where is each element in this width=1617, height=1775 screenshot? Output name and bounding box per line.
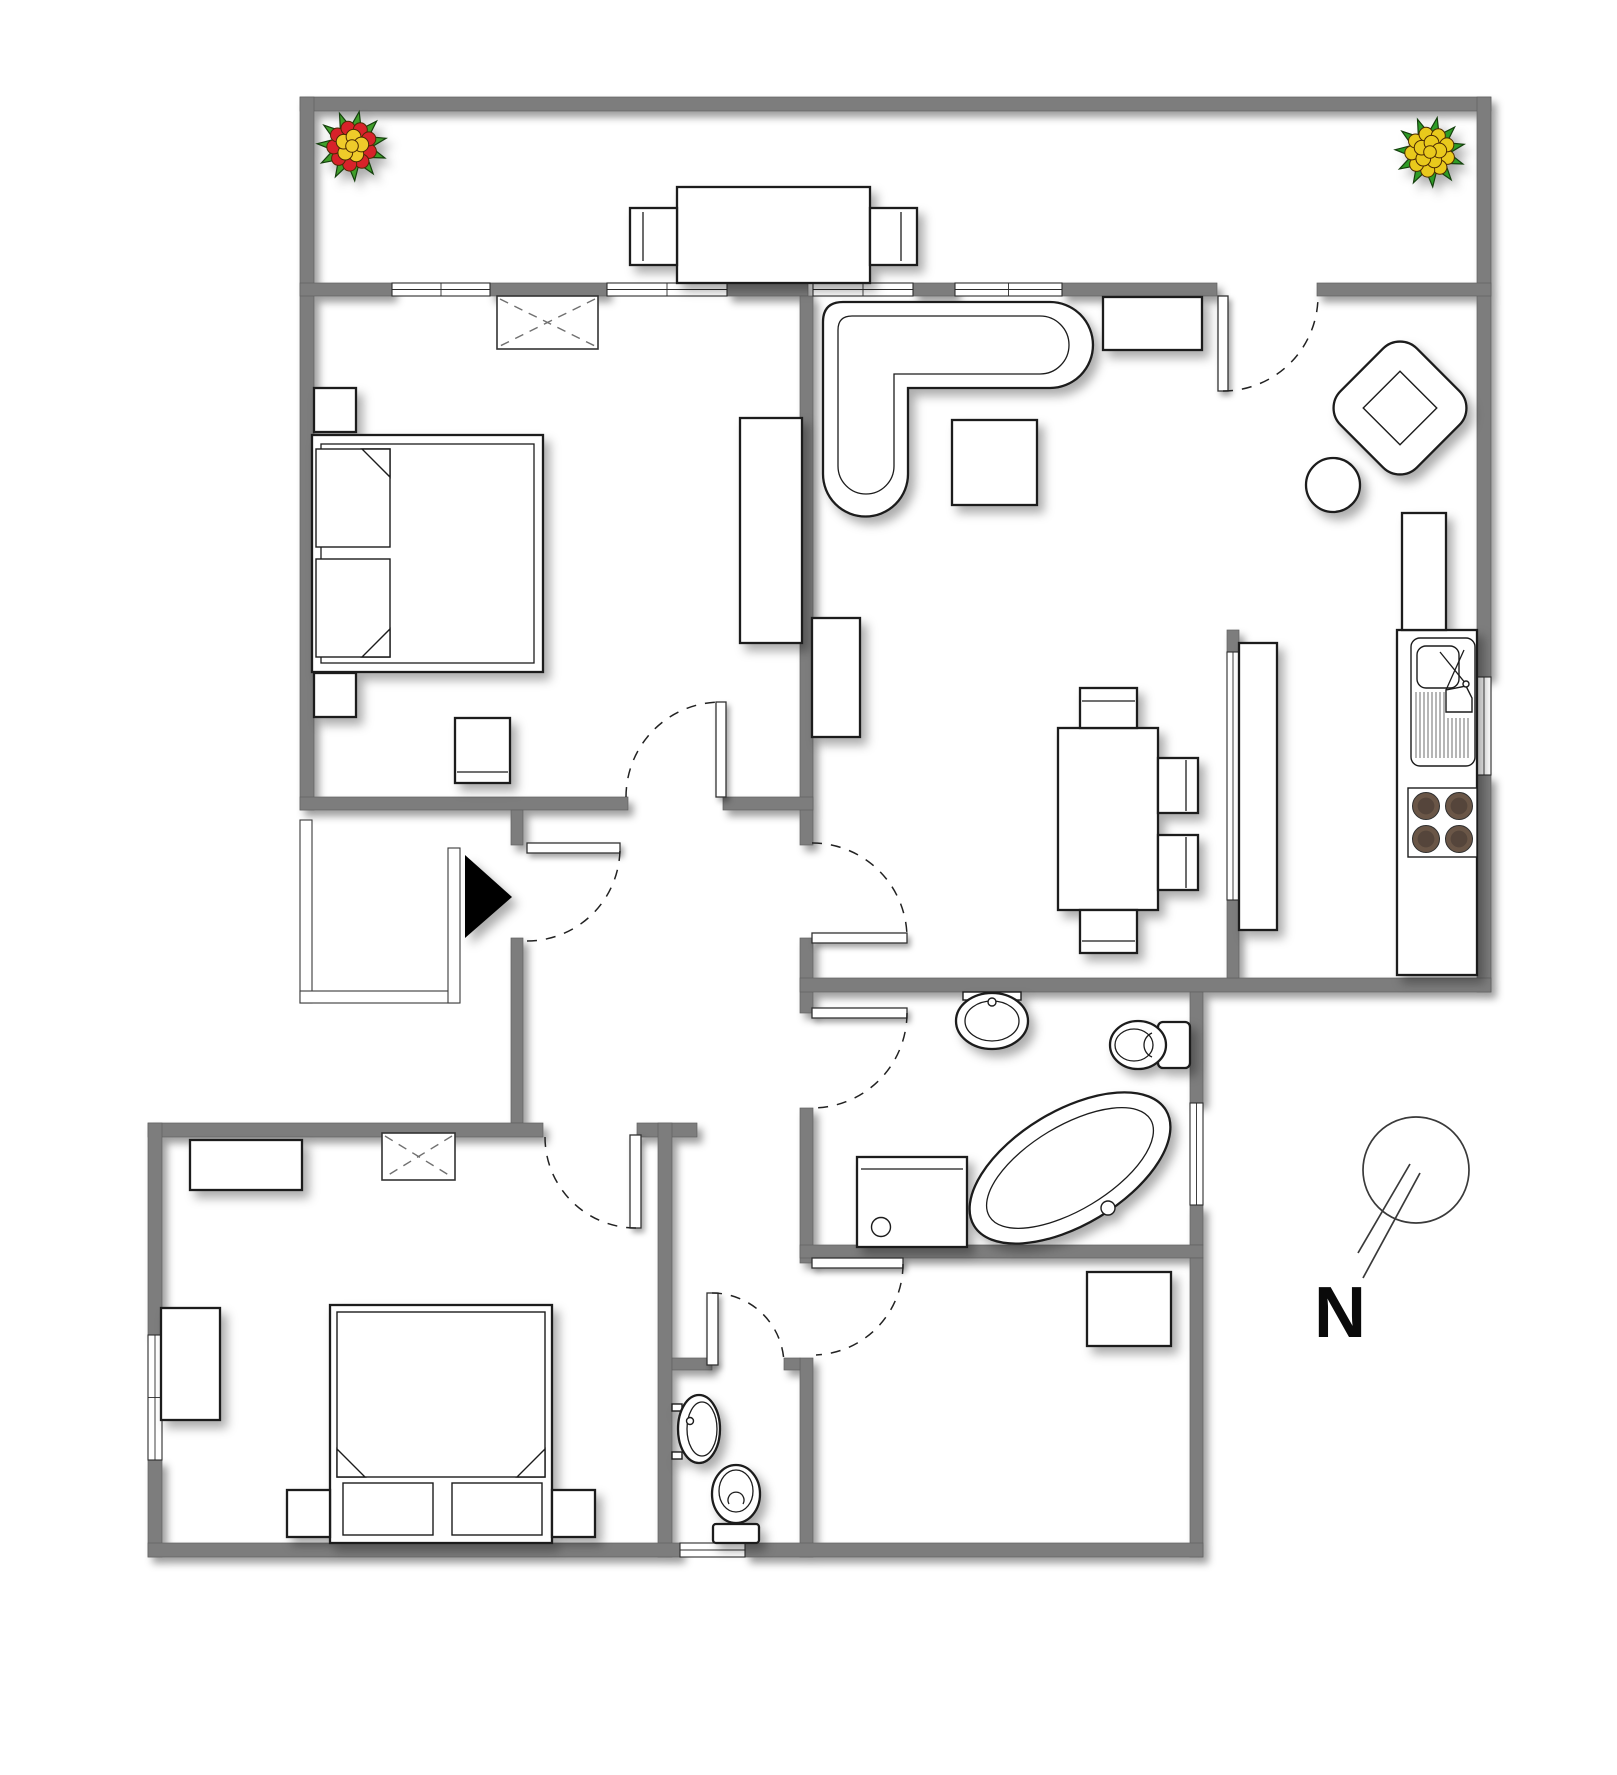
floor-plan-page: N (0, 0, 1617, 1775)
wall-balcony-b (490, 283, 607, 296)
wall-bath-right-a (1190, 992, 1203, 1103)
balcony-chair-right (870, 208, 917, 265)
wall-bedroom2-top (148, 1123, 543, 1137)
compass-north-label: N (1314, 1273, 1366, 1353)
window-balcony-3 (813, 283, 913, 296)
door-bedroom2-leaf (630, 1135, 641, 1228)
window-kitchen-right (1477, 677, 1491, 775)
flower-yellow-berry-center (1424, 146, 1437, 159)
door-bedroom2-swing (545, 1137, 636, 1228)
wall-balcony-e (1062, 283, 1217, 296)
bathtub (945, 1061, 1196, 1274)
entrance-arrow (465, 855, 512, 938)
door-entrance-swing (527, 848, 620, 941)
bed1-nightstand-bottom (314, 673, 356, 717)
dining-chair-right1 (1158, 758, 1198, 813)
wall-wc-inner-b (784, 1358, 800, 1370)
wall-balcony-d (913, 283, 955, 296)
balcony-table (677, 187, 870, 283)
window-balcony-2 (607, 283, 727, 296)
bed2-duvet (337, 1312, 545, 1477)
door-room2-leaf (812, 1258, 903, 1268)
floor-plan-svg: N (0, 0, 1617, 1775)
bed2-nightstand-left (287, 1490, 330, 1537)
dining-chair-top (1080, 688, 1137, 728)
bath-toilet-bowl (1110, 1021, 1166, 1069)
dining-chair-right2 (1158, 835, 1198, 890)
coffee-table (952, 420, 1037, 505)
wall-bath-right-b (1190, 1205, 1203, 1245)
wall-bedroom2-right (658, 1123, 672, 1557)
stove-burner-2-inner (1451, 798, 1468, 815)
door-bedroom1-leaf (716, 702, 726, 797)
door-wc-leaf (707, 1293, 718, 1365)
wc-sink-faucet (687, 1418, 694, 1425)
bed2-pillow-left (343, 1483, 433, 1535)
flower-red (317, 112, 386, 181)
window-bathroom (1190, 1103, 1203, 1205)
bathtub-drain (1101, 1201, 1115, 1215)
wall-room2-right (1190, 1258, 1203, 1557)
wall-bedroom1-bottom-left (300, 797, 628, 810)
flower-red-berry-center (346, 140, 359, 153)
door-balcony-leaf (1218, 296, 1228, 391)
wall-bottom-b (745, 1543, 1203, 1557)
wc-sink (678, 1395, 720, 1463)
door-hall-dining-leaf (812, 933, 907, 943)
shower-drain (872, 1218, 891, 1237)
wall-bedroom2-left-b (148, 1460, 162, 1557)
stove-burner-1-inner (1418, 798, 1435, 815)
window-balcony-4 (955, 283, 1062, 296)
wall-divider-low (800, 1108, 813, 1263)
room2-table (1087, 1272, 1171, 1346)
furniture-layer (161, 187, 1477, 1543)
wall-balcony-f (1317, 283, 1491, 296)
wall-kitchen-divider-cap-bottom (1227, 900, 1239, 978)
wall-kitchen-divider-cap-top (1227, 630, 1239, 652)
bed2-nightstand-right (552, 1490, 595, 1537)
wall-hall (511, 938, 523, 1123)
door-bathroom-swing (812, 1013, 907, 1108)
kitchen-sink-basin2 (1446, 686, 1472, 712)
bedroom2-dresser (190, 1140, 302, 1190)
door-room2-swing (816, 1264, 903, 1355)
wall-hall-stub (511, 810, 523, 845)
stove-burner-4-inner (1451, 831, 1468, 848)
bed1-nightstand-top (314, 388, 356, 432)
bedroom2-desk (161, 1308, 220, 1420)
bath-sink-faucet (988, 998, 996, 1006)
wall-bottom-a (148, 1543, 680, 1557)
wall-balcony-c (727, 283, 808, 296)
compass: N (1314, 1117, 1469, 1353)
window-balcony-1 (392, 283, 490, 296)
kitchen-tall-cabinet (1402, 513, 1446, 630)
balcony-chair-left (630, 208, 677, 265)
wc-sink-tab2 (672, 1452, 682, 1459)
door-bathroom-leaf (812, 1008, 907, 1018)
wc-toilet-tank (713, 1524, 759, 1543)
wall-bedroom1-bottom-right (723, 797, 813, 810)
wall-divider-mid (800, 938, 813, 1013)
door-wc-swing (712, 1293, 784, 1365)
dining-chair-bottom (1080, 910, 1137, 953)
wall-right-mid (1477, 775, 1491, 992)
stairwell-wall-left (300, 820, 312, 1003)
window-wc (680, 1543, 745, 1557)
compass-circle (1363, 1117, 1469, 1223)
door-balcony-swing (1223, 296, 1318, 391)
wall-right-upper (1477, 97, 1491, 677)
window-kitchen-divider (1227, 652, 1239, 900)
kitchen-island-counter (1239, 643, 1277, 930)
door-bedroom1-swing (626, 702, 721, 797)
sideboard (1103, 297, 1202, 350)
dining-table (1058, 728, 1158, 910)
wall-balcony-a (300, 283, 392, 296)
thin-walls-layer (300, 820, 460, 1003)
stove-burner-3-inner (1418, 831, 1435, 848)
kitchen-faucet-dot (1463, 681, 1469, 687)
bedroom1-cabinet (740, 418, 802, 643)
door-entrance-leaf (527, 843, 620, 853)
dining-cabinet (812, 618, 860, 737)
side-table-round (1306, 458, 1360, 512)
wall-wc-inner-a (672, 1358, 712, 1370)
wall-bedroom2-left-a (148, 1123, 162, 1335)
wall-bath-kitchen (800, 978, 1491, 992)
bed2-pillow-right (452, 1483, 542, 1535)
flower-yellow (1395, 118, 1464, 187)
compass-needle-2 (1363, 1173, 1420, 1278)
wall-wc-right-low (800, 1358, 813, 1557)
door-hall-dining-swing (812, 843, 907, 938)
stairwell-wall-right (448, 848, 460, 1003)
stairwell-wall-bottom (300, 991, 458, 1003)
wall-top (300, 97, 1491, 111)
bedroom1-stool (455, 718, 510, 783)
